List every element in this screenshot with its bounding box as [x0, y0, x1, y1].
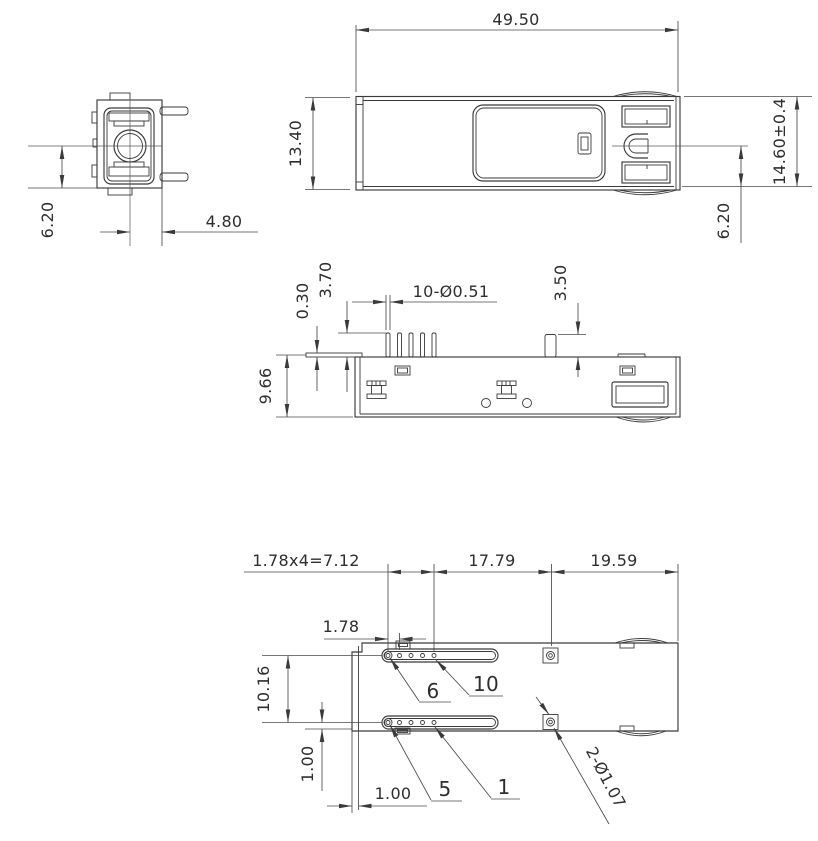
label-recess	[473, 105, 605, 181]
dim-text-center-offset: 4.80	[206, 212, 243, 231]
dim-text-center-height: 6.20	[38, 202, 57, 239]
left-tab	[92, 112, 97, 123]
spring-tab	[620, 726, 634, 731]
contact-pin	[409, 333, 413, 357]
bottom-view-body	[352, 639, 678, 736]
mounting-pin	[160, 173, 188, 181]
dim-row-spacing: 10.16	[254, 656, 382, 723]
pin-label-5: 5	[438, 777, 451, 801]
dim-center-height: 6.20	[28, 146, 97, 238]
dim-text-rear-span: 19.59	[590, 551, 637, 570]
dim-side-edge-offset: 1.00	[327, 731, 427, 813]
dim-text-row-spacing: 10.16	[254, 665, 273, 712]
front-lip	[306, 353, 362, 357]
side-view-body	[306, 333, 680, 422]
dim-row-edge-offset: 1.00	[298, 702, 352, 791]
post-hole	[543, 648, 558, 663]
post-hole	[543, 715, 558, 730]
dim-text-lip-thickness: 0.30	[293, 283, 312, 320]
dim-text-width: 13.40	[286, 120, 305, 167]
contact-pin	[398, 333, 402, 357]
leader-post-holes: 2-Ø1.07	[536, 697, 630, 824]
label-slot	[578, 133, 591, 154]
side-view: 9.66 0.30 3.70 10-Ø0.51 3.50	[256, 262, 680, 422]
engineering-drawing: 6.20 4.80	[0, 0, 818, 841]
bottom-tab	[108, 188, 132, 195]
end-view: 6.20 4.80	[28, 93, 258, 246]
bottom-view: 1.78x4=7.12 17.79 19.59 1.78 10.16 1.00	[244, 551, 678, 824]
dim-text-row-edge-offset: 1.00	[298, 746, 317, 783]
dim-text-post-holes: 2-Ø1.07	[582, 744, 630, 811]
dim-post-height: 3.50	[551, 265, 586, 377]
contact-pin	[386, 333, 390, 357]
dim-text-overall-height: 14.60±0.4	[770, 98, 789, 185]
dim-pin-pitch: 1.78	[323, 617, 426, 650]
mounting-pin	[160, 107, 188, 115]
dim-pin-diameter: 10-Ø0.51	[352, 282, 497, 330]
dim-text-pin-diameter: 10-Ø0.51	[413, 282, 490, 301]
dim-length: 49.50	[356, 10, 678, 92]
dim-text-pin-pitch: 1.78	[323, 617, 360, 636]
leader-pin6: 6	[390, 658, 451, 703]
dim-latch-offset: 6.20	[714, 146, 741, 243]
dim-body-height: 9.66	[256, 355, 353, 417]
boss-feature	[497, 381, 516, 399]
pin-holes-row-top	[384, 652, 436, 660]
pin-label-10: 10	[473, 672, 499, 696]
spring-tab	[620, 643, 634, 648]
standoff-post	[545, 335, 556, 358]
dim-text-center-span: 17.79	[468, 551, 515, 570]
dim-overall-height: 14.60±0.4	[682, 97, 812, 187]
leader-pin10: 10	[436, 660, 503, 696]
top-view-body	[356, 92, 748, 195]
dim-lip-thickness: 0.30	[293, 283, 317, 391]
contact-pin	[421, 333, 425, 357]
pad-slot	[382, 649, 498, 662]
dim-center-offset: 4.80	[100, 188, 258, 246]
dim-text-pin-height: 3.70	[316, 262, 335, 299]
dim-text-latch-offset: 6.20	[714, 203, 733, 240]
top-view: 49.50 13.40 14.60±0.4 6.20	[286, 10, 812, 243]
dim-text-pin-pitch-total: 1.78x4=7.12	[252, 551, 360, 570]
boss-feature	[367, 381, 386, 399]
dim-text-post-height: 3.50	[551, 265, 570, 302]
side-hole	[523, 399, 532, 408]
dim-pin-height: 3.70	[316, 262, 386, 392]
dim-chain-horizontal: 1.78x4=7.12 17.79 19.59	[244, 551, 678, 652]
pad-slot	[382, 716, 498, 729]
pin-label-6: 6	[426, 679, 439, 703]
dim-width: 13.40	[286, 98, 350, 190]
dim-text-body-height: 9.66	[256, 368, 275, 405]
pin-holes-row-bottom	[384, 719, 436, 727]
left-tab	[92, 165, 97, 177]
top-tab	[110, 93, 130, 100]
dim-text-length: 49.50	[492, 10, 539, 29]
pin-label-1: 1	[497, 775, 510, 799]
contact-pin	[432, 333, 436, 357]
side-hole	[482, 399, 491, 408]
drawing-sheet: 6.20 4.80	[0, 0, 818, 841]
dim-text-side-edge-offset: 1.00	[375, 784, 412, 803]
